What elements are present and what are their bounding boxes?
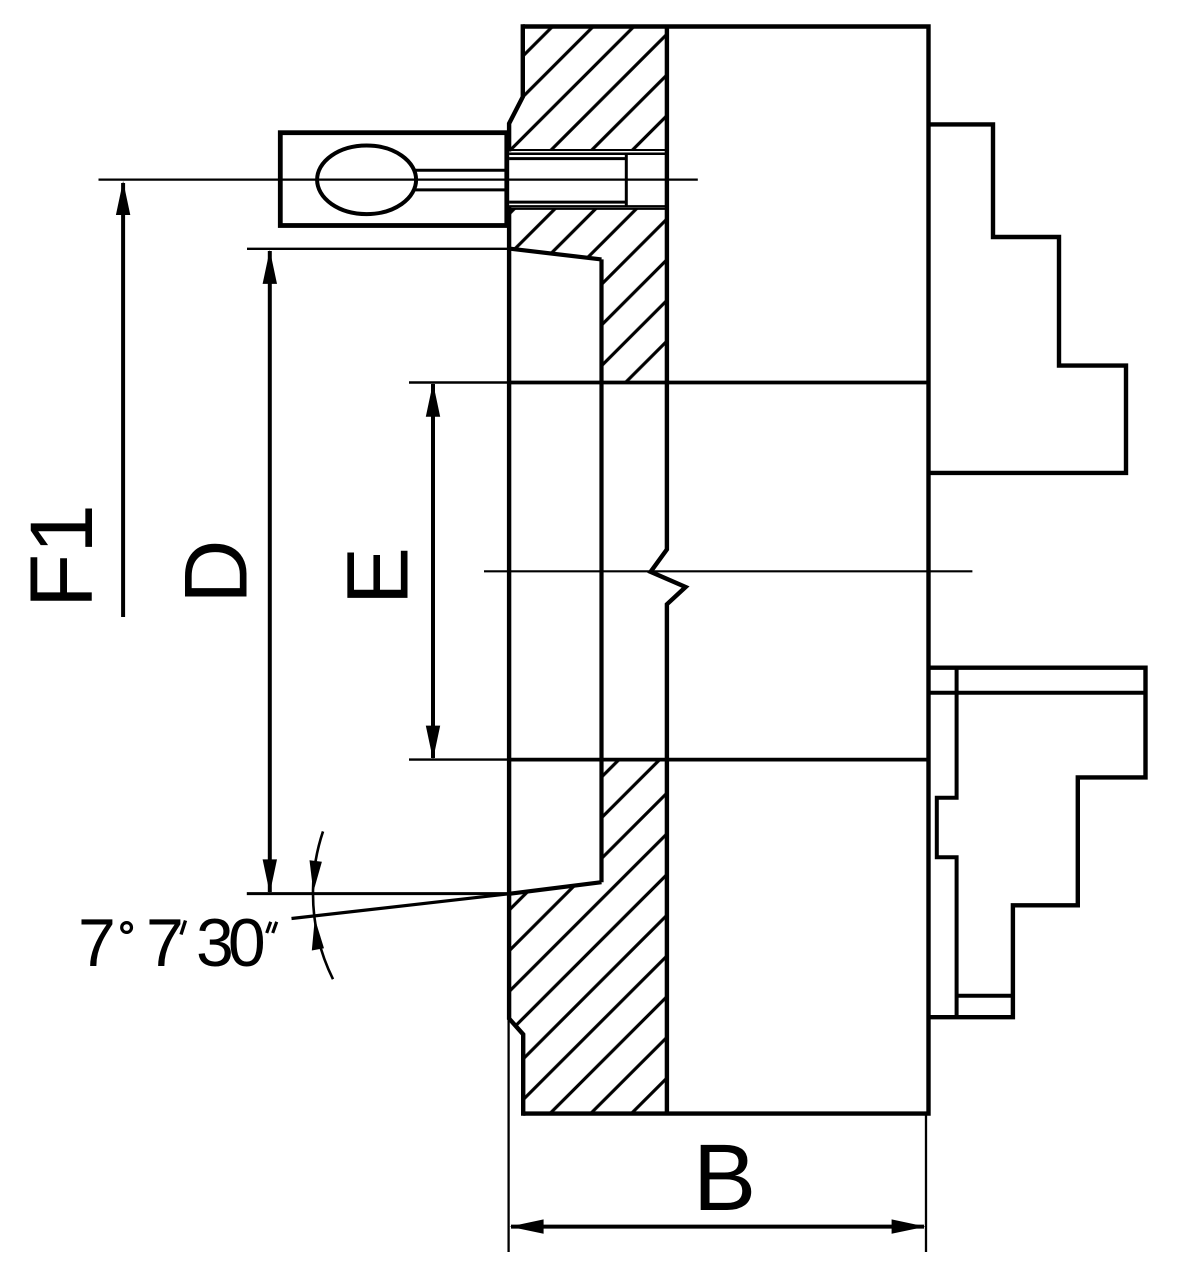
svg-text:F1: F1	[11, 504, 111, 608]
svg-text:7: 7	[78, 905, 116, 981]
svg-text:B: B	[693, 1125, 756, 1231]
svg-text:7: 7	[146, 905, 184, 981]
svg-text:30: 30	[196, 905, 264, 981]
svg-text:E: E	[330, 547, 427, 605]
svg-text:D: D	[166, 539, 266, 603]
